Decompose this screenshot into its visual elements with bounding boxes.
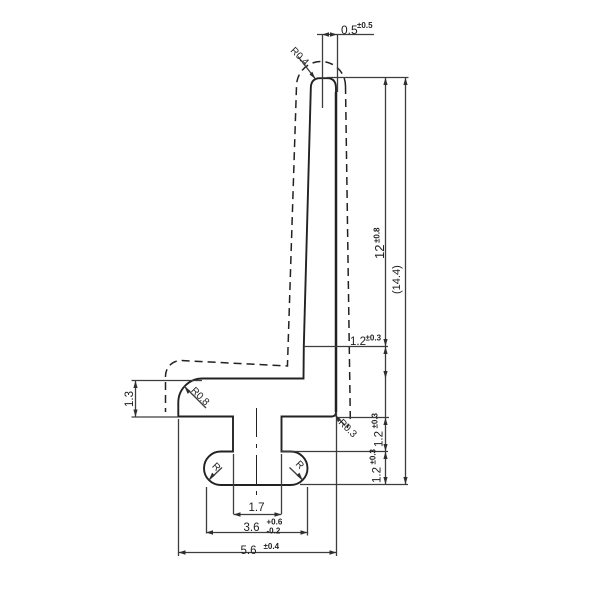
svg-text:(14.4): (14.4) bbox=[391, 265, 403, 294]
svg-text:1.2: 1.2 bbox=[372, 467, 384, 483]
svg-text:±0.3: ±0.3 bbox=[369, 448, 378, 464]
svg-text:5.6: 5.6 bbox=[241, 545, 257, 557]
svg-text:R: R bbox=[293, 459, 306, 472]
svg-text:±0.5: ±0.5 bbox=[357, 21, 373, 30]
svg-text:±0.3: ±0.3 bbox=[366, 334, 382, 343]
svg-text:+0.6: +0.6 bbox=[267, 518, 283, 527]
svg-text:12: 12 bbox=[372, 245, 387, 259]
svg-text:R0.3: R0.3 bbox=[336, 417, 359, 440]
svg-text:-0.2: -0.2 bbox=[267, 527, 281, 536]
svg-text:3.6: 3.6 bbox=[244, 522, 260, 534]
svg-text:1.3: 1.3 bbox=[124, 391, 136, 407]
svg-text:R0.8: R0.8 bbox=[188, 385, 211, 408]
svg-text:±0.8: ±0.8 bbox=[373, 227, 382, 243]
svg-text:±0.4: ±0.4 bbox=[264, 542, 280, 551]
svg-text:1.7: 1.7 bbox=[249, 502, 265, 514]
svg-text:±0.3: ±0.3 bbox=[371, 412, 380, 428]
svg-text:1.2: 1.2 bbox=[350, 336, 366, 348]
svg-text:R: R bbox=[209, 461, 222, 474]
svg-text:1.2: 1.2 bbox=[374, 431, 386, 447]
svg-text:0.5: 0.5 bbox=[341, 23, 358, 37]
